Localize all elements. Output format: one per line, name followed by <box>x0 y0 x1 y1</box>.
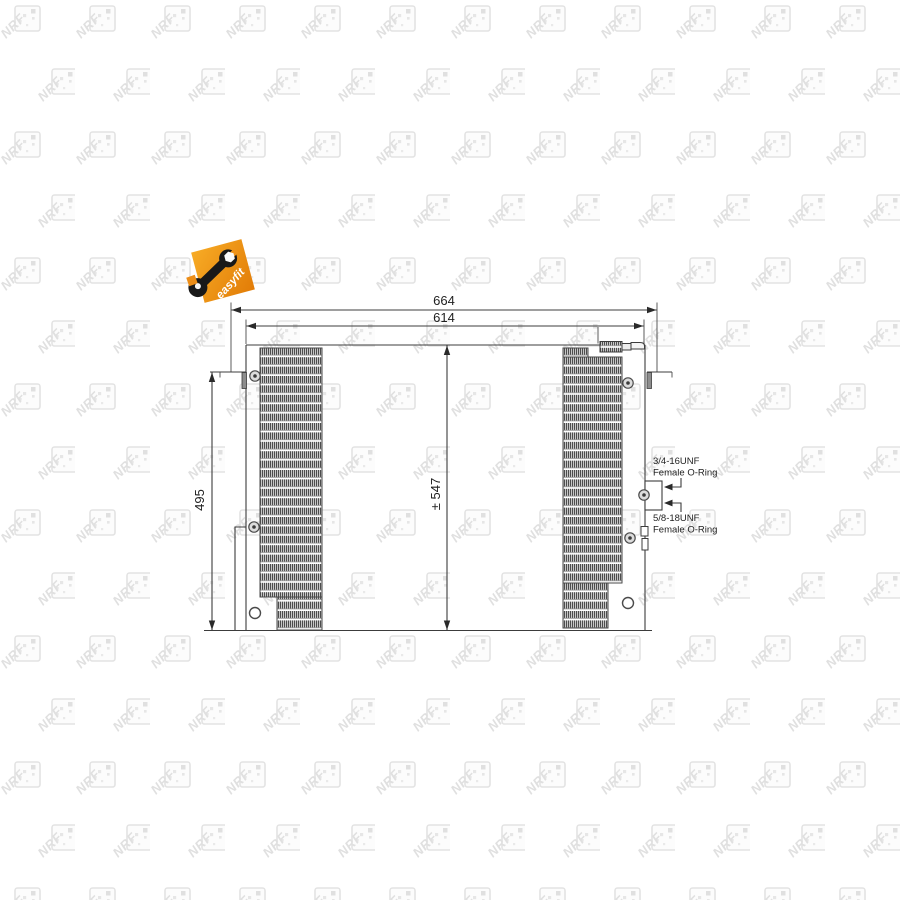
mounting-hole <box>623 598 634 609</box>
dimension-label-side-height: 495 <box>192 489 207 511</box>
dimension-label-core-width: 614 <box>433 310 455 325</box>
dimension-label-overall-width: 664 <box>433 293 455 308</box>
mounting-hole <box>250 608 261 619</box>
screw-icon <box>625 533 635 543</box>
condenser-technical-drawing: NRF NRF <box>0 0 900 900</box>
screw-icon <box>250 371 260 381</box>
side-plate-clips <box>641 527 648 551</box>
screw-icon <box>639 490 649 500</box>
port-top-seal: Female O-Ring <box>653 468 717 479</box>
nrf-watermark-layer <box>0 0 900 900</box>
port-bottom-seal: Female O-Ring <box>653 525 717 536</box>
fin-core-left <box>260 348 322 630</box>
screw-icon <box>623 378 633 388</box>
dimension-label-total-height: ± 547 <box>428 478 443 510</box>
port-bottom-thread: 5/8-18UNF <box>653 513 700 524</box>
port-top-thread: 3/4-16UNF <box>653 456 700 467</box>
screw-icon <box>249 522 259 532</box>
technical-drawing-page: NRF NRF <box>0 0 900 900</box>
